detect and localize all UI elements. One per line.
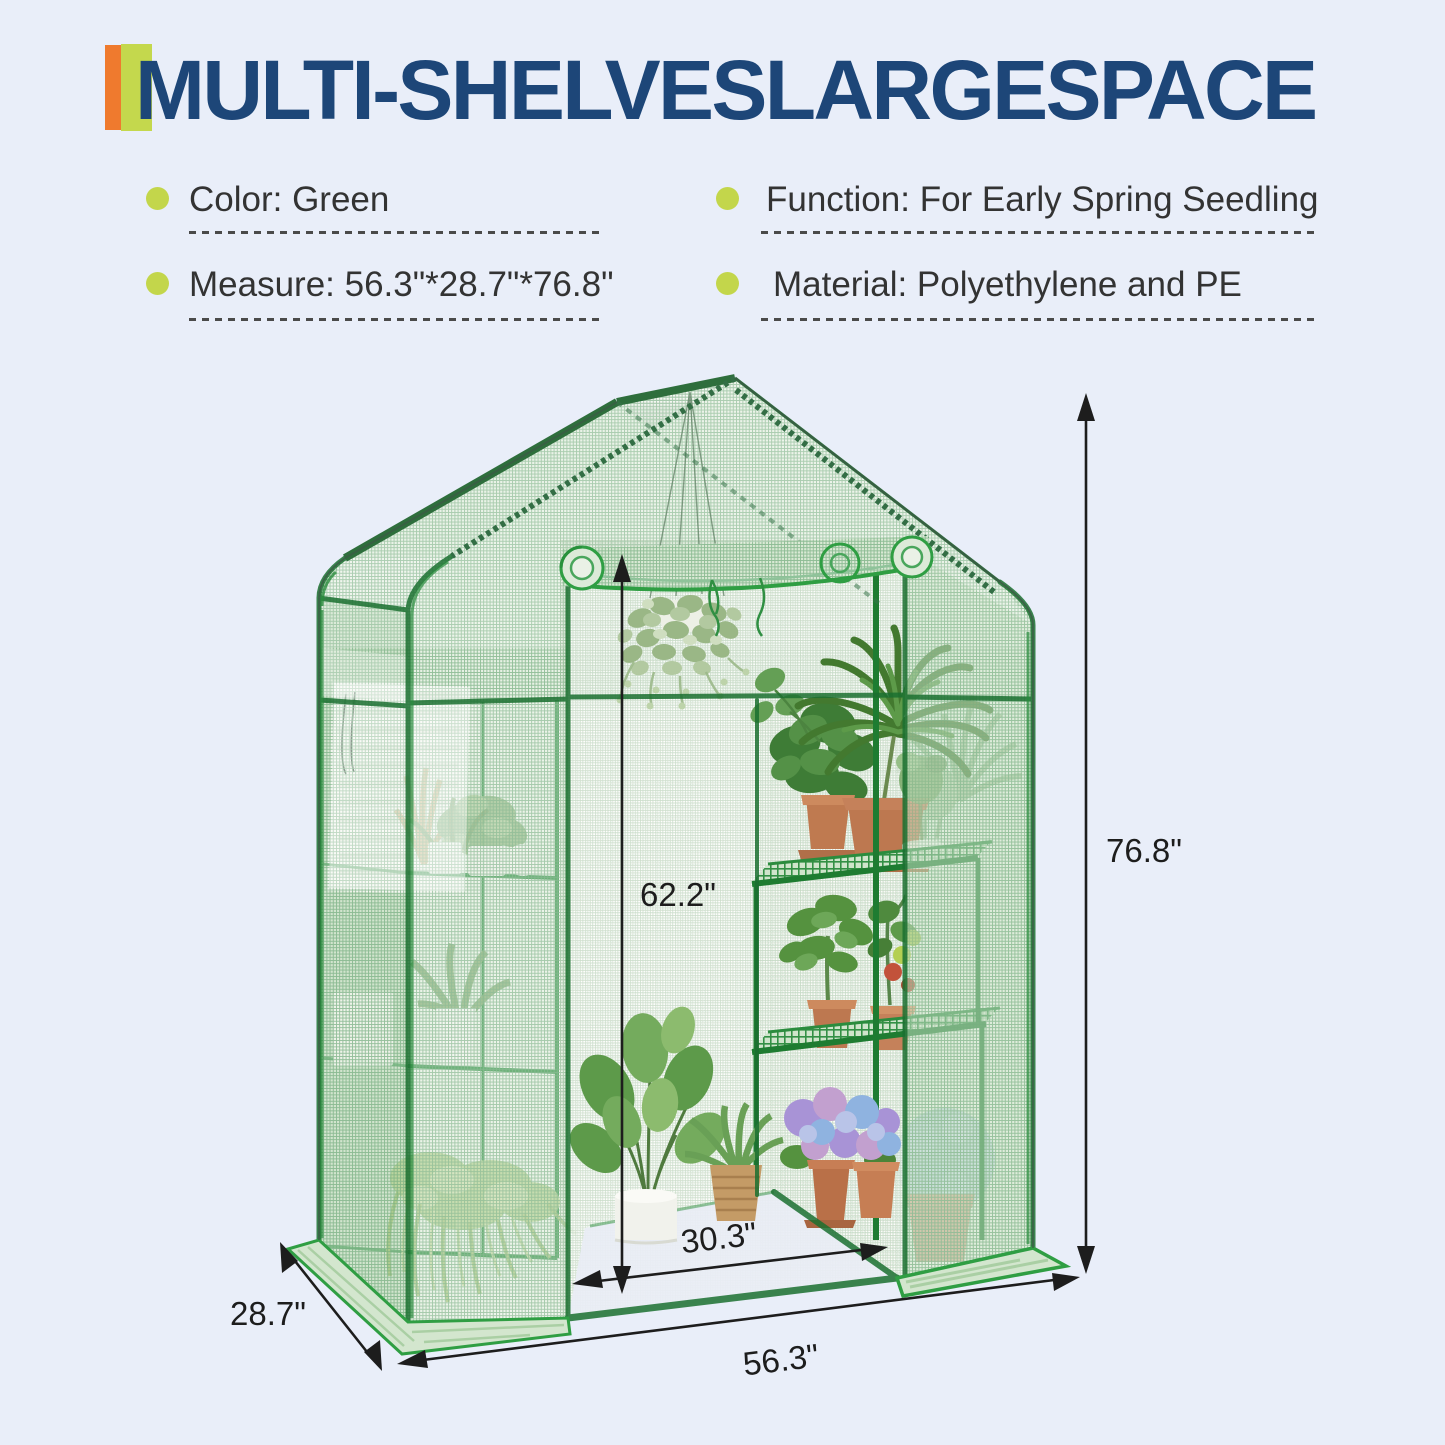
svg-text:62.2": 62.2"	[640, 876, 716, 913]
svg-text:76.8": 76.8"	[1106, 832, 1182, 869]
svg-text:28.7": 28.7"	[230, 1295, 306, 1332]
svg-text:56.3": 56.3"	[741, 1337, 821, 1383]
